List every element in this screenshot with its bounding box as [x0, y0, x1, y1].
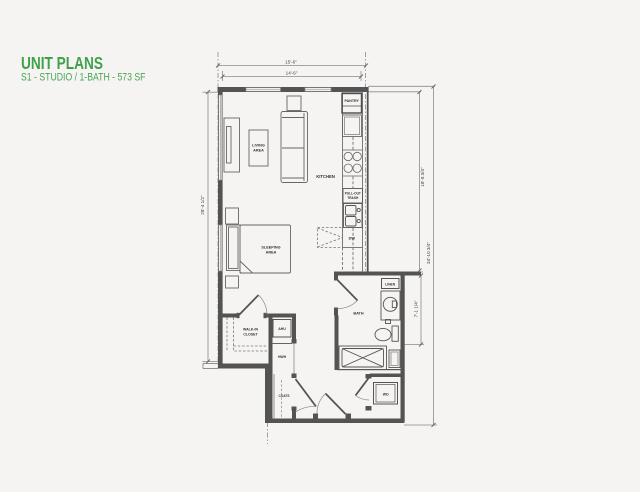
svg-text:14'-6": 14'-6"	[286, 71, 298, 76]
svg-text:AREA: AREA	[253, 149, 264, 153]
svg-text:AREA: AREA	[266, 251, 277, 255]
svg-text:28'-4 1/2": 28'-4 1/2"	[200, 195, 205, 215]
svg-text:S1 - STUDIO / 1-BATH - 573 SF: S1 - STUDIO / 1-BATH - 573 SF	[21, 72, 146, 84]
svg-text:34'-10 3/4": 34'-10 3/4"	[426, 242, 431, 264]
svg-text:18'-8 3/4": 18'-8 3/4"	[420, 167, 425, 187]
svg-text:DW: DW	[349, 237, 356, 241]
svg-text:LIVING: LIVING	[252, 144, 265, 148]
svg-text:UNIT PLANS: UNIT PLANS	[21, 53, 103, 73]
svg-text:LINEN: LINEN	[385, 283, 396, 287]
svg-text:15'-6": 15'-6"	[285, 60, 297, 65]
svg-text:TRASH: TRASH	[347, 196, 359, 200]
svg-text:PANTRY: PANTRY	[345, 99, 360, 103]
svg-text:SLEEPING: SLEEPING	[261, 246, 280, 250]
svg-text:BATH: BATH	[353, 312, 364, 316]
svg-text:AHU: AHU	[278, 327, 286, 331]
svg-text:KITCHEN: KITCHEN	[316, 174, 335, 179]
svg-text:WALK-IN: WALK-IN	[243, 328, 258, 332]
svg-text:PULL-OUT: PULL-OUT	[345, 191, 361, 195]
svg-text:WD: WD	[383, 393, 389, 397]
svg-text:HWH: HWH	[278, 355, 287, 359]
svg-text:COATS: COATS	[279, 394, 290, 398]
svg-text:7'-1 1/4": 7'-1 1/4"	[414, 300, 419, 317]
svg-text:CLOSET: CLOSET	[243, 333, 258, 337]
